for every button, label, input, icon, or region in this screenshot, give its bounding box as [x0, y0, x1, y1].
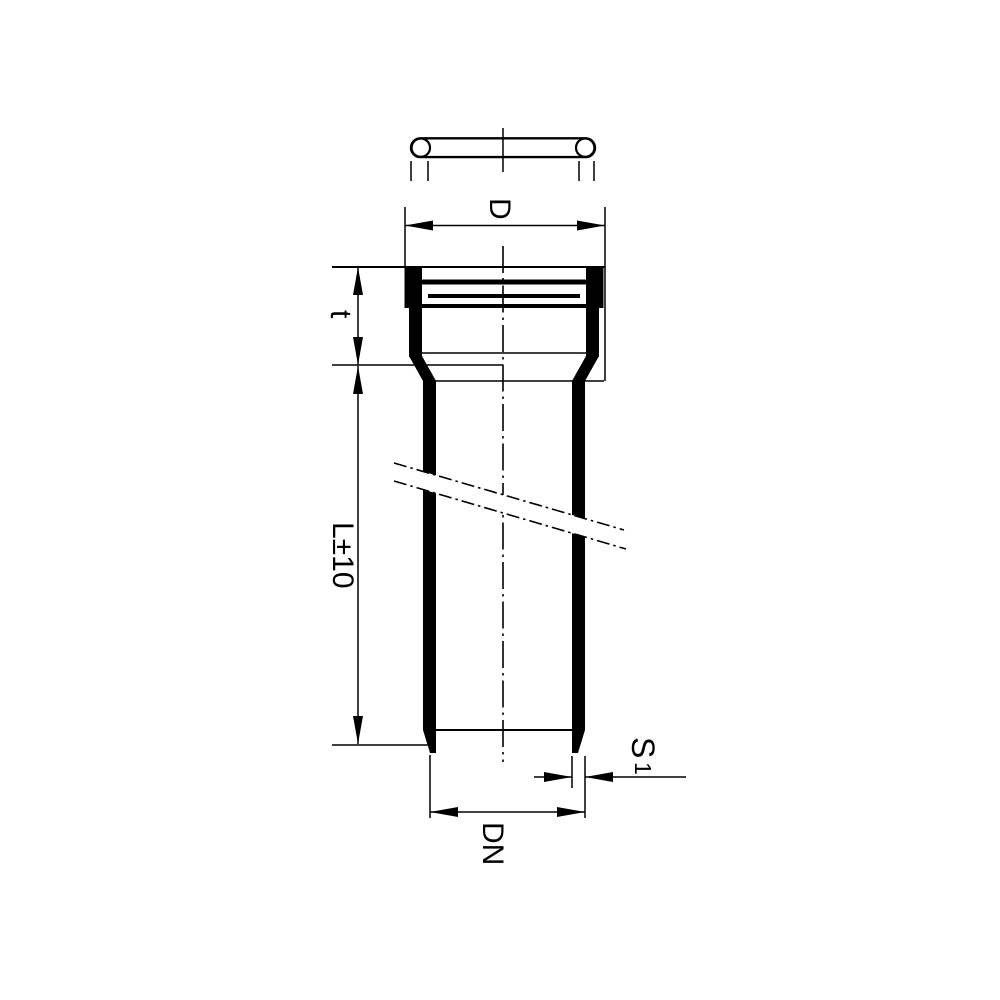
label-wall-thickness-subscript: 1: [630, 762, 656, 775]
arrowhead-left: [585, 772, 613, 782]
pipe-chamfer-right: [572, 730, 585, 753]
arrowhead-up: [353, 366, 363, 394]
socket-taper-left: [409, 356, 436, 381]
arrowhead-right: [557, 807, 585, 817]
page: D t: [0, 0, 1000, 1000]
pipe-technical-drawing: D t: [0, 0, 1000, 1000]
arrowhead-left: [430, 807, 458, 817]
arrowhead-right: [544, 772, 572, 782]
dimension-DN: DN: [430, 755, 585, 865]
sealing-ring-right-section: [576, 139, 594, 157]
sealing-ring-left-section: [412, 139, 430, 157]
dimension-S1: S 1: [534, 737, 686, 818]
arrowhead-down: [353, 716, 363, 744]
pipe-wall-left: [423, 380, 436, 730]
pipe-wall-right: [572, 380, 585, 730]
label-nominal-diameter: DN: [476, 822, 509, 865]
socket-wall-right: [586, 306, 599, 357]
label-wall-thickness: S: [625, 737, 661, 758]
label-pipe-length: L±10: [326, 522, 359, 589]
pipe-socket: [332, 266, 605, 381]
sealing-ring: [411, 128, 595, 181]
label-socket-depth: t: [324, 310, 357, 319]
arrowhead-down: [353, 337, 363, 365]
dimension-L: L±10: [326, 366, 436, 745]
socket-wall-left: [409, 306, 422, 357]
socket-rim-left: [405, 266, 423, 308]
groove-upper-lip: [421, 280, 587, 285]
socket-rim-right: [586, 266, 604, 308]
groove-lower-lip: [428, 294, 580, 298]
groove-seat-line: [421, 304, 587, 308]
arrowhead-left: [405, 221, 433, 231]
label-socket-outer-diameter: D: [483, 198, 516, 220]
pipe-body: [423, 380, 585, 753]
arrowhead-up: [353, 267, 363, 295]
arrowhead-right: [577, 221, 605, 231]
pipe-chamfer-left: [423, 730, 436, 753]
socket-taper-right: [572, 356, 599, 381]
